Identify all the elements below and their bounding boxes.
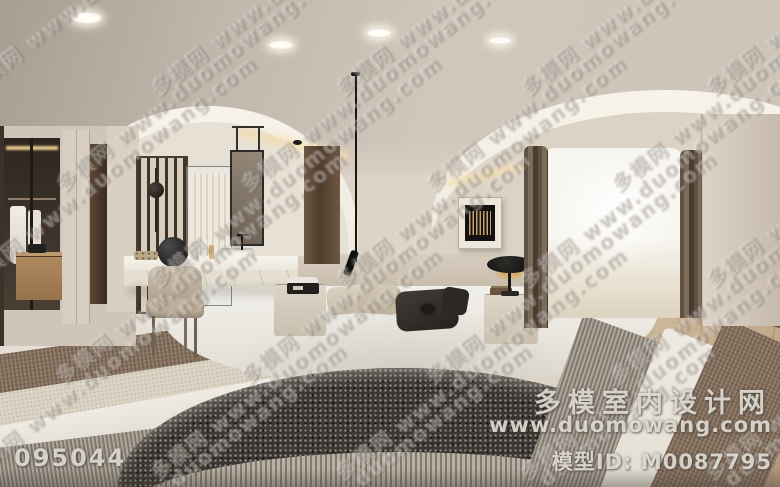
closet-door-seam [76, 130, 77, 324]
faucet-icon [237, 234, 249, 236]
photo-id: 095044 [14, 444, 126, 472]
wall-corner-shadow [700, 114, 703, 326]
right-wall [702, 114, 780, 326]
wall-wood-panel [304, 146, 340, 264]
faucet-stem [241, 234, 243, 250]
wardrobe-drawers [16, 256, 62, 300]
sphere-decor [158, 237, 188, 267]
mirror-hanging-rod [258, 128, 260, 152]
downlight-icon [366, 28, 392, 38]
alarm-clock-display [293, 286, 303, 290]
downlight-icon [72, 12, 102, 24]
chair-leg [152, 316, 155, 356]
vanity-chair-seat [146, 298, 204, 318]
lamp-base [501, 291, 519, 296]
toiletry-bottle [209, 245, 214, 259]
artwork-stripes [469, 211, 491, 235]
chair-leg [194, 318, 197, 358]
toiletry-bottle [201, 239, 207, 260]
drawer-top-items [28, 244, 46, 253]
pendant-rod [355, 76, 357, 262]
alarm-clock [287, 283, 319, 294]
vanity-mirror [230, 150, 264, 246]
ceiling-fixture [293, 140, 302, 145]
panorama-bedroom-render: 多模网 www.duomowang.com多模网 www.duomowang.c… [0, 0, 780, 487]
downlight-icon [488, 36, 512, 45]
curtain-panel-left [524, 146, 548, 328]
model-id: 模型ID: M0087795 [552, 446, 772, 476]
site-url: www.duomowang.com [489, 413, 772, 437]
pillow-knot [421, 304, 435, 314]
chair-leg [184, 314, 187, 348]
mirror-hanging-rod [236, 128, 238, 152]
perfume-tray [134, 251, 158, 260]
pillow-dark [440, 286, 470, 316]
shower-pipe [155, 168, 157, 232]
toiletry-bottle [191, 241, 199, 260]
wash-basin [218, 248, 254, 260]
downlight-icon [268, 40, 294, 50]
passage-door [90, 144, 107, 304]
shower-head-icon [148, 182, 164, 198]
window-light-core [554, 156, 676, 268]
